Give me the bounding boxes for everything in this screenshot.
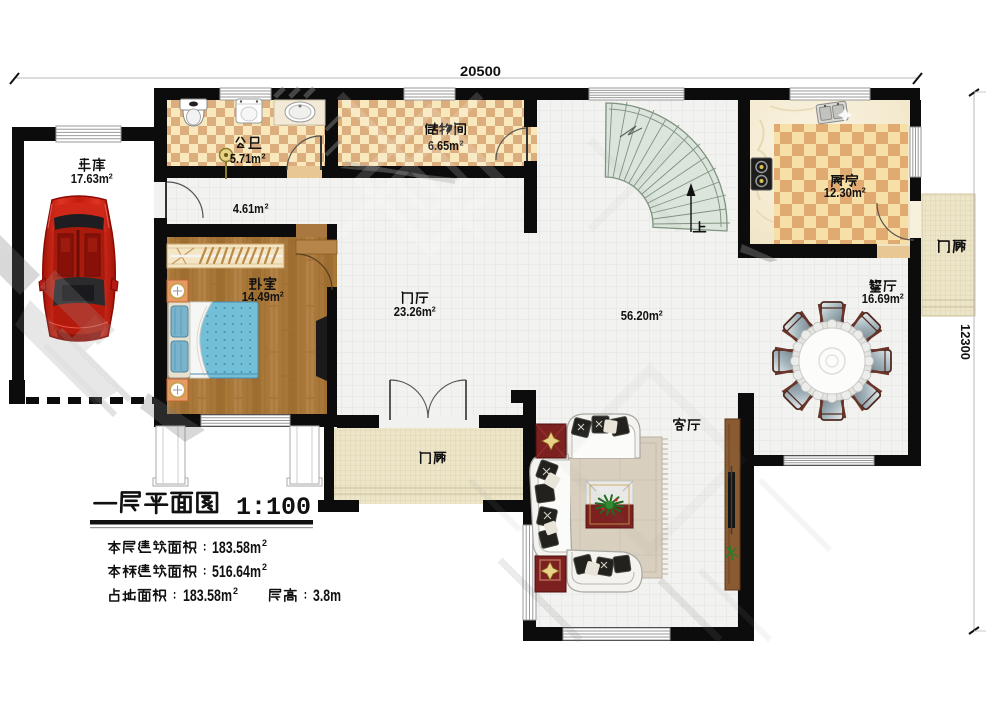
svg-text:4.61m: 4.61m	[233, 201, 264, 216]
svg-text:1:100: 1:100	[236, 493, 311, 522]
svg-text:12300: 12300	[958, 324, 973, 360]
svg-text:2: 2	[432, 305, 436, 314]
svg-text:2: 2	[900, 292, 904, 301]
svg-text:2: 2	[262, 538, 267, 548]
svg-text:2: 2	[109, 172, 113, 181]
svg-text:2: 2	[659, 309, 663, 318]
svg-text:23.26m: 23.26m	[394, 304, 432, 319]
svg-text:2: 2	[280, 290, 284, 299]
svg-text:2: 2	[262, 152, 266, 161]
svg-text:2: 2	[233, 586, 238, 596]
svg-text:20500: 20500	[460, 63, 501, 79]
svg-text:2: 2	[265, 202, 269, 211]
svg-text:516.64m: 516.64m	[212, 562, 261, 581]
svg-text:17.63m: 17.63m	[71, 171, 109, 186]
svg-text:5.71m: 5.71m	[230, 151, 261, 166]
svg-text:183.58m: 183.58m	[212, 538, 261, 557]
svg-text:2: 2	[262, 562, 267, 572]
svg-text:12.30m: 12.30m	[824, 185, 862, 200]
svg-text:56.20m: 56.20m	[621, 308, 659, 323]
svg-text:14.49m: 14.49m	[242, 289, 280, 304]
svg-text:3.8m: 3.8m	[313, 586, 341, 605]
svg-text:183.58m: 183.58m	[183, 586, 232, 605]
svg-text:16.69m: 16.69m	[862, 291, 900, 306]
svg-text:2: 2	[862, 186, 866, 195]
